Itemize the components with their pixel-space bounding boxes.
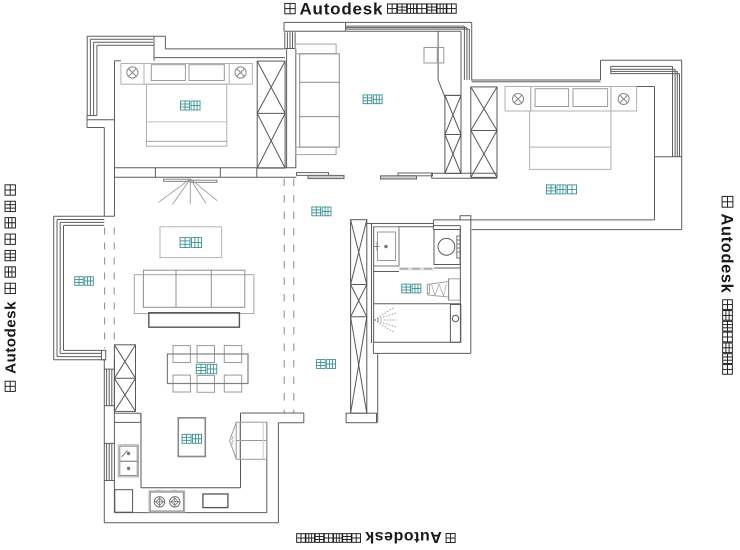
svg-text:Autodesk: Autodesk: [300, 0, 384, 19]
svg-text:Autodesk: Autodesk: [718, 214, 736, 294]
svg-text:Autodesk: Autodesk: [365, 528, 442, 545]
svg-text:Autodesk: Autodesk: [3, 301, 20, 374]
